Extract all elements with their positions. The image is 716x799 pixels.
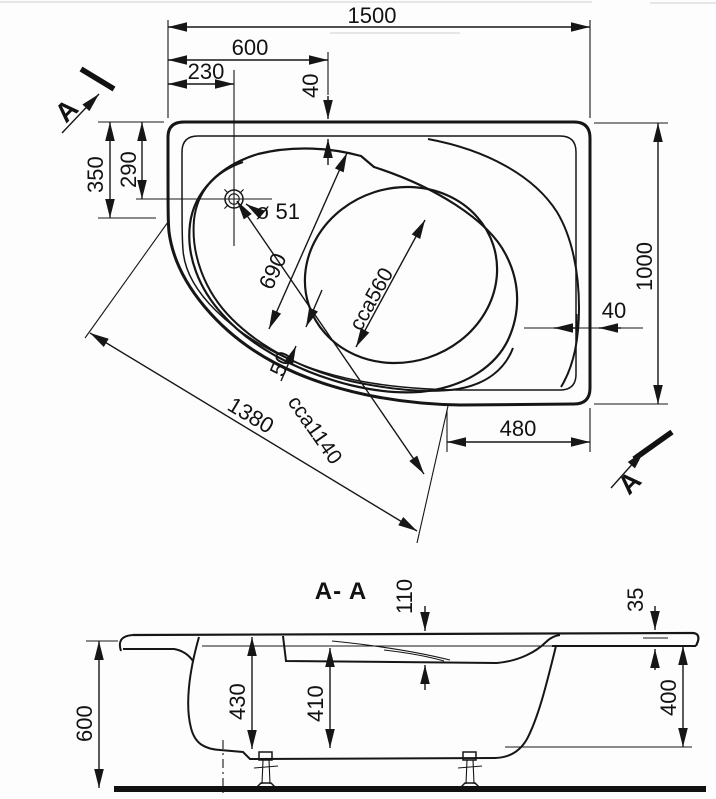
dim-drain-diameter: ø 51 bbox=[246, 199, 300, 224]
dim-label-40-top: 40 bbox=[298, 74, 323, 98]
basin-lip-line bbox=[194, 162, 513, 391]
tub-inner-rim bbox=[182, 136, 576, 390]
section-marker-letter: A bbox=[49, 93, 84, 128]
seat-oval bbox=[282, 162, 520, 387]
dim-40-top: 40 bbox=[298, 74, 328, 165]
dim-label-cca560: cca560 bbox=[345, 264, 398, 334]
section-marker-bottom-right: A bbox=[611, 432, 672, 500]
dim-400: 400 bbox=[505, 646, 692, 747]
dim-35: 35 bbox=[623, 588, 668, 670]
section-left-rim-tab bbox=[120, 635, 193, 661]
dim-label-350: 350 bbox=[83, 156, 108, 193]
dim-label-1000: 1000 bbox=[632, 242, 657, 291]
section-backrest-curve bbox=[332, 641, 450, 661]
dim-label-35: 35 bbox=[623, 588, 648, 612]
dim-label-410: 410 bbox=[303, 685, 328, 722]
bathtub-drawing-canvas: 1500 600 230 40 350 290 ø 51 bbox=[0, 0, 716, 799]
dim-410: 410 bbox=[303, 648, 330, 748]
dim-label-400: 400 bbox=[656, 679, 681, 716]
dim-1000: 1000 bbox=[594, 123, 668, 404]
dim-label-cca1140: cca1140 bbox=[283, 392, 346, 469]
section-seat bbox=[283, 636, 497, 663]
tub-foot-left bbox=[251, 752, 281, 790]
dim-cca560: cca560 bbox=[345, 220, 425, 347]
section-marker-top-left: A bbox=[49, 69, 114, 133]
dim-label-section-600: 600 bbox=[72, 705, 97, 742]
technical-drawing-page: 1500 600 230 40 350 290 ø 51 bbox=[0, 0, 716, 799]
dim-label-230: 230 bbox=[188, 59, 225, 84]
dim-label-drain: ø 51 bbox=[256, 199, 300, 224]
dim-50: 50 bbox=[265, 290, 322, 381]
section-marker-letter: A bbox=[612, 465, 647, 500]
bathtub-section-view: A- A bbox=[72, 578, 706, 793]
dim-430: 430 bbox=[225, 637, 252, 749]
dim-label-110: 110 bbox=[392, 579, 417, 614]
dim-40-right: 40 bbox=[524, 298, 643, 341]
dim-label-1500: 1500 bbox=[348, 3, 397, 28]
dim-230: 230 bbox=[168, 59, 234, 84]
drain-symbol bbox=[136, 70, 272, 246]
section-rim-top bbox=[133, 633, 698, 646]
section-title: A- A bbox=[315, 578, 367, 605]
dim-label-430: 430 bbox=[225, 683, 250, 720]
dim-290: 290 bbox=[116, 122, 142, 199]
dim-label-480: 480 bbox=[500, 416, 537, 441]
dim-690: 690 bbox=[254, 153, 347, 329]
floor-bar bbox=[114, 786, 706, 792]
basin-edge bbox=[189, 148, 517, 392]
dim-label-40-right: 40 bbox=[602, 298, 626, 323]
dim-label-600: 600 bbox=[232, 35, 269, 60]
bathtub-plan-view: 1500 600 230 40 350 290 ø 51 bbox=[49, 3, 672, 543]
section-back-wall bbox=[497, 635, 560, 663]
dim-label-1380: 1380 bbox=[223, 392, 278, 439]
dim-1380: 1380 bbox=[85, 222, 417, 531]
dim-section-600: 600 bbox=[72, 641, 118, 788]
dim-label-290: 290 bbox=[116, 151, 141, 188]
dim-480: 480 bbox=[447, 408, 590, 452]
